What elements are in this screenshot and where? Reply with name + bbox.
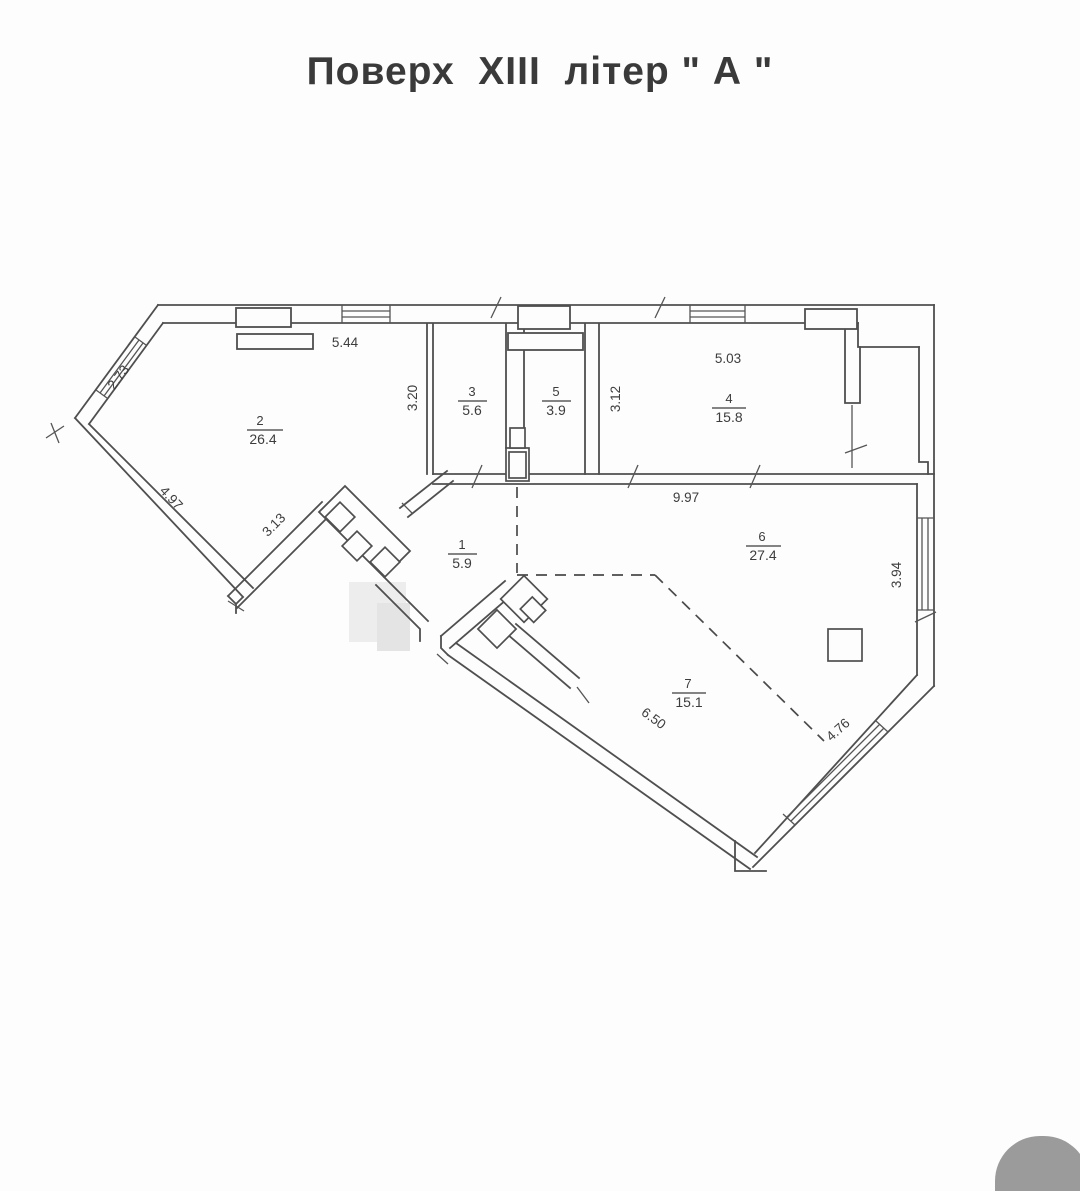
room-label-5: 5 3.9 [542,384,571,418]
dim-east-wall: 3.94 [889,561,904,588]
svg-text:5.9: 5.9 [452,555,472,571]
room-label-1: 1 5.9 [448,537,477,571]
room-label-3: 3 5.6 [458,384,487,418]
dim-room2-height: 3.20 [405,385,420,411]
dim-west-upper: 4.97 [157,483,186,512]
entrance-door [478,576,547,648]
outer-walls [75,305,934,871]
dim-se-wall: 4.76 [823,715,853,744]
scan-blob [995,1136,1080,1191]
dim-top-width: 5.44 [332,335,359,350]
scan-artifacts [349,582,1080,1191]
room-label-7: 7 15.1 [672,676,706,710]
svg-text:3.9: 3.9 [546,402,566,418]
interior-walls [427,324,934,484]
dim-room4-width: 5.03 [715,351,741,366]
dim-interior-width: 9.97 [673,490,699,505]
dim-west-lower: 3.13 [259,510,288,539]
dimension-labels: 5.44 2.73 3.20 3.12 5.03 4.97 3.13 9.97 … [105,335,904,744]
windows [96,305,934,825]
svg-text:15.8: 15.8 [715,409,742,425]
svg-text:1: 1 [458,537,465,552]
dim-room5-height: 3.12 [608,386,623,412]
svg-text:7: 7 [684,676,691,691]
room-label-4: 4 15.8 [712,391,746,425]
svg-text:5: 5 [552,384,559,399]
room-label-2: 2 26.4 [247,413,283,447]
floor-plan-drawing: 5.44 2.73 3.20 3.12 5.03 4.97 3.13 9.97 … [0,0,1080,1191]
dim-sw-wall: 6.50 [639,705,669,733]
floor-plan-page: Поверх XIII літер " А " [0,0,1080,1191]
dim-nw-wall: 2.73 [105,362,133,392]
wall-beams [236,306,857,350]
vent-shaft [319,486,410,577]
svg-text:2: 2 [256,413,263,428]
svg-text:26.4: 26.4 [249,431,276,447]
column [828,629,862,661]
svg-text:5.6: 5.6 [462,402,482,418]
svg-text:3: 3 [468,384,475,399]
room-label-6: 6 27.4 [746,529,781,563]
svg-text:15.1: 15.1 [675,694,702,710]
dashed-boundary [517,487,824,741]
svg-text:27.4: 27.4 [749,547,776,563]
svg-text:6: 6 [758,529,765,544]
svg-text:4: 4 [725,391,732,406]
